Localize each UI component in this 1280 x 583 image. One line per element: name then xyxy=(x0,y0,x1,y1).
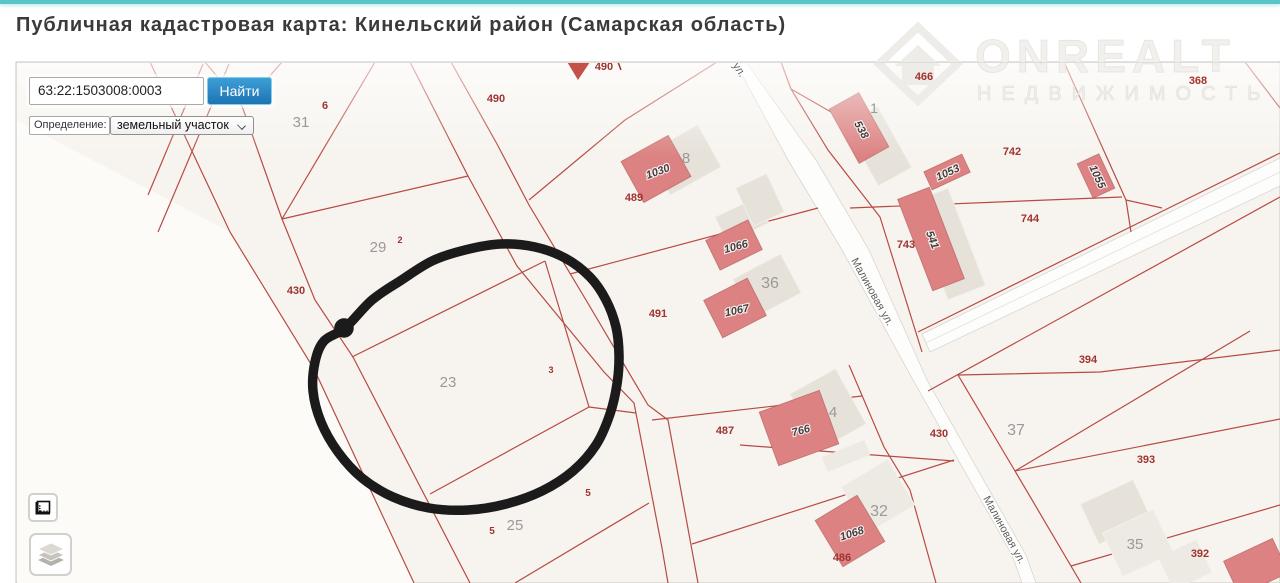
svg-text:31: 31 xyxy=(293,114,310,131)
svg-text:430: 430 xyxy=(930,428,948,440)
svg-text:35: 35 xyxy=(1127,536,1144,553)
svg-text:6: 6 xyxy=(322,100,328,112)
svg-text:743: 743 xyxy=(897,239,915,251)
svg-text:3: 3 xyxy=(548,365,553,375)
svg-text:4: 4 xyxy=(829,404,837,421)
svg-text:368: 368 xyxy=(1189,75,1207,87)
svg-text:487: 487 xyxy=(716,425,734,437)
svg-text:392: 392 xyxy=(1191,548,1209,560)
svg-text:1: 1 xyxy=(870,100,878,116)
svg-text:742: 742 xyxy=(1003,146,1021,158)
svg-text:5: 5 xyxy=(489,526,495,537)
svg-text:394: 394 xyxy=(1079,354,1098,366)
svg-text:490: 490 xyxy=(487,93,505,105)
svg-text:36: 36 xyxy=(761,275,779,292)
svg-text:744: 744 xyxy=(1021,213,1040,225)
svg-text:2: 2 xyxy=(397,235,402,245)
svg-text:8: 8 xyxy=(682,150,690,167)
svg-text:430: 430 xyxy=(287,285,305,297)
svg-text:29: 29 xyxy=(370,239,387,256)
svg-text:НЕДВИЖИМОСТЬ: НЕДВИЖИМОСТЬ xyxy=(977,83,1270,105)
svg-text:5: 5 xyxy=(585,488,591,499)
svg-text:466: 466 xyxy=(915,71,933,83)
svg-text:489: 489 xyxy=(625,192,643,204)
svg-text:25: 25 xyxy=(507,517,524,534)
svg-text:37: 37 xyxy=(1007,422,1025,439)
svg-text:32: 32 xyxy=(870,503,888,520)
svg-text:486: 486 xyxy=(833,552,851,564)
svg-text:393: 393 xyxy=(1137,454,1155,466)
svg-text:491: 491 xyxy=(649,308,667,320)
svg-text:23: 23 xyxy=(440,374,457,391)
